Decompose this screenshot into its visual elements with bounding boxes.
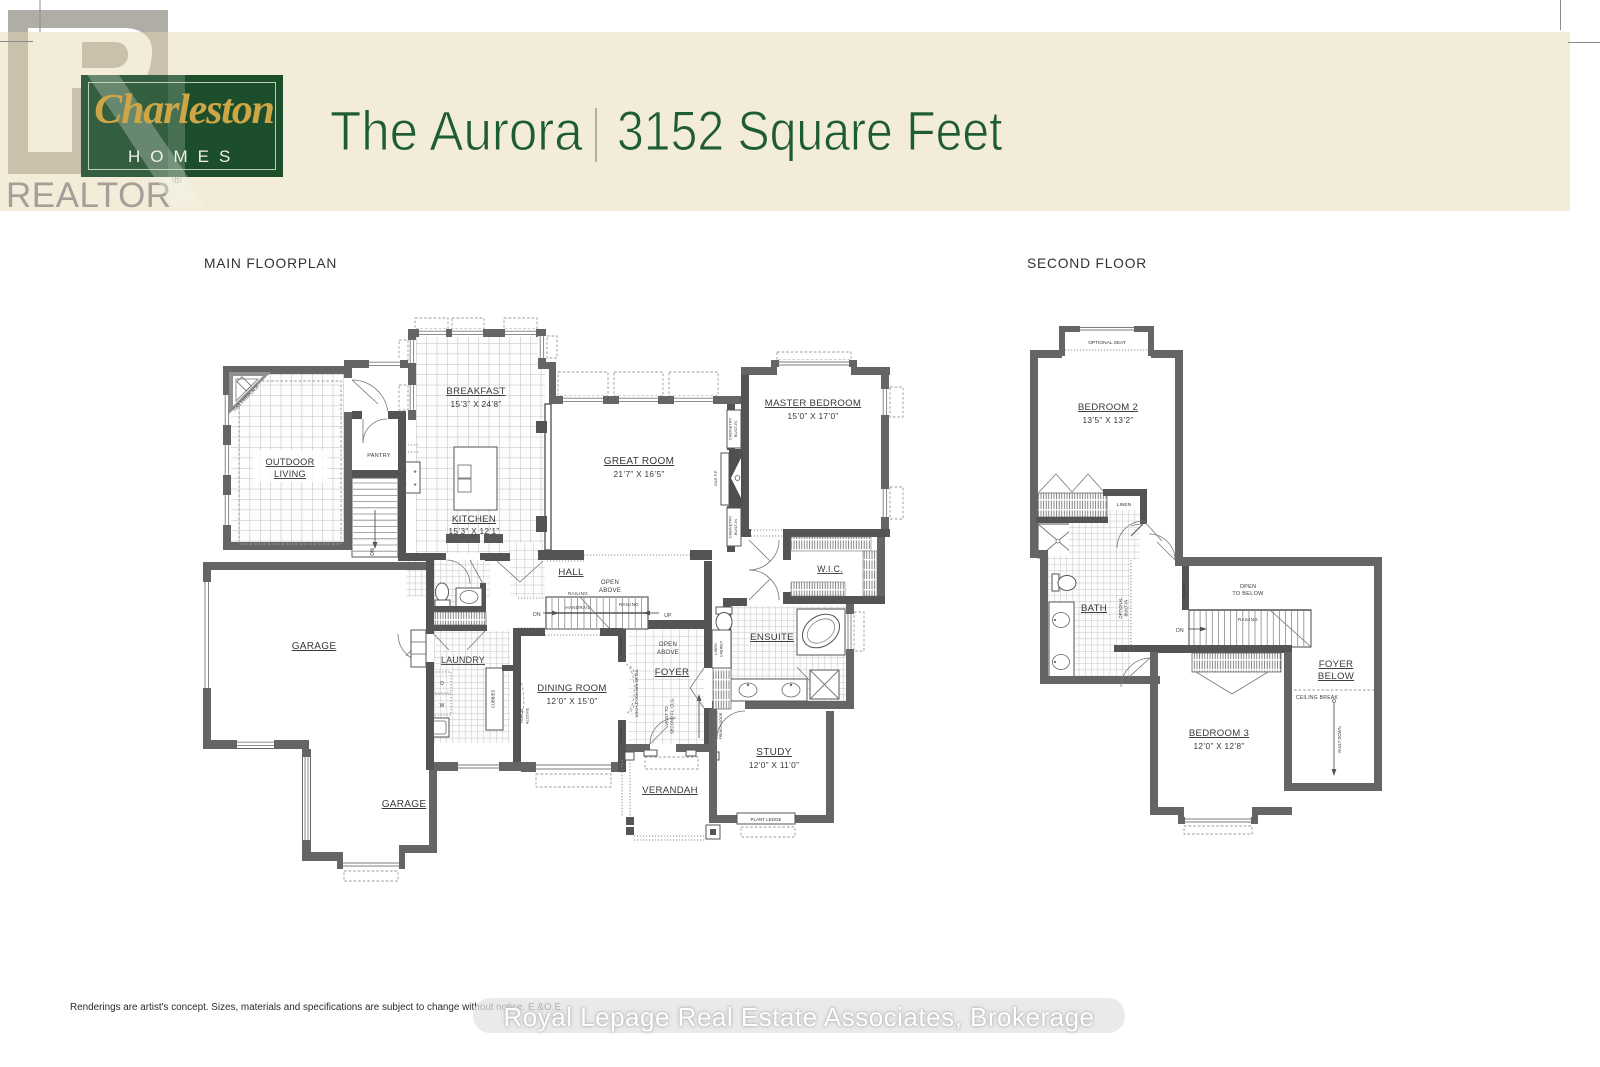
svg-text:ALCOVE: ALCOVE	[525, 708, 530, 725]
svg-text:15’0” X 17’0”: 15’0” X 17’0”	[788, 411, 839, 421]
svg-text:15’3” X 24’8”: 15’3” X 24’8”	[451, 399, 502, 409]
svg-text:LINEN: LINEN	[1117, 502, 1132, 508]
svg-text:RAILING: RAILING	[1238, 617, 1258, 622]
svg-text:LIVING: LIVING	[274, 469, 306, 479]
svg-text:VAULT TO: VAULT TO	[664, 705, 669, 725]
svg-text:PLANT LEDGE: PLANT LEDGE	[751, 817, 782, 822]
svg-text:GARAGE: GARAGE	[382, 799, 427, 810]
svg-text:OPTIONAL SEAT: OPTIONAL SEAT	[1088, 340, 1126, 346]
svg-text:BUILT-IN: BUILT-IN	[733, 421, 738, 437]
svg-text:KITCHEN: KITCHEN	[452, 514, 496, 525]
svg-text:BUILT-IN: BUILT-IN	[1124, 600, 1129, 617]
svg-text:CABINETRY: CABINETRY	[728, 515, 733, 538]
svg-text:BEDROOM 2: BEDROOM 2	[1078, 402, 1138, 413]
svg-text:LAUNDRY: LAUNDRY	[441, 655, 485, 665]
svg-text:GARAGE: GARAGE	[292, 641, 337, 652]
svg-text:RAILING: RAILING	[1181, 582, 1186, 598]
svg-text:12’0” X 15’0”: 12’0” X 15’0”	[547, 696, 598, 706]
svg-text:CUBBIES: CUBBIES	[491, 690, 496, 709]
svg-text:D: D	[440, 681, 444, 687]
svg-text:HANDRAIL: HANDRAIL	[565, 605, 590, 610]
svg-text:12’0” X 11’0”: 12’0” X 11’0”	[749, 760, 799, 770]
svg-text:OUTDOOR: OUTDOOR	[265, 457, 314, 467]
svg-text:GAS F.P.: GAS F.P.	[713, 470, 718, 486]
svg-text:BUILT-IN: BUILT-IN	[733, 519, 738, 535]
svg-text:PANTRY: PANTRY	[367, 453, 391, 459]
svg-text:DN: DN	[1176, 628, 1184, 634]
svg-text:OPEN: OPEN	[659, 642, 677, 648]
svg-text:HALL: HALL	[558, 567, 584, 578]
svg-text:RAILING: RAILING	[619, 602, 639, 607]
svg-text:DN: DN	[370, 548, 376, 556]
svg-text:OPEN: OPEN	[1240, 584, 1257, 590]
svg-text:VAULT DOWN: VAULT DOWN	[1337, 726, 1342, 753]
svg-text:OPEN: OPEN	[601, 580, 619, 586]
svg-text:OPTIONAL: OPTIONAL	[1118, 597, 1123, 619]
svg-text:DN: DN	[533, 612, 541, 618]
svg-text:VERANDAH: VERANDAH	[642, 785, 698, 796]
svg-text:MASTER BEDROOM: MASTER BEDROOM	[765, 398, 861, 409]
svg-text:TO BELOW: TO BELOW	[1232, 591, 1264, 597]
svg-text:13’5” X 13’2”: 13’5” X 13’2”	[1083, 415, 1134, 425]
svg-text:W: W	[440, 703, 445, 709]
svg-text:STUDY: STUDY	[756, 747, 791, 758]
svg-text:12’0” X 12’8”: 12’0” X 12’8”	[1194, 741, 1245, 751]
svg-text:ABOVE: ABOVE	[657, 650, 679, 656]
svg-text:*: *	[413, 482, 416, 491]
svg-text:BREAKFAST: BREAKFAST	[446, 386, 505, 397]
svg-text:RAILING: RAILING	[568, 591, 588, 596]
svg-text:W.I.C.: W.I.C.	[817, 564, 843, 574]
svg-text:GREAT ROOM: GREAT ROOM	[604, 456, 674, 467]
svg-text:BATH: BATH	[1081, 603, 1107, 614]
svg-text:SECOND FL. CLG.: SECOND FL. CLG.	[670, 698, 675, 734]
svg-text:CABINET: CABINET	[720, 640, 724, 657]
svg-text:BEDROOM 3: BEDROOM 3	[1189, 728, 1249, 739]
svg-text:FOYER: FOYER	[655, 667, 690, 678]
svg-text:FOYER: FOYER	[1319, 659, 1354, 670]
svg-text:LINEN: LINEN	[714, 643, 718, 654]
svg-text:ARCH & COLUMN DETAIL: ARCH & COLUMN DETAIL	[634, 668, 639, 717]
svg-text:CABINETRY: CABINETRY	[728, 417, 733, 440]
svg-text:ENSUITE: ENSUITE	[750, 632, 794, 643]
svg-text:DINING ROOM: DINING ROOM	[537, 683, 606, 694]
svg-text:21’7” X 16’5”: 21’7” X 16’5”	[614, 469, 665, 479]
svg-text:UP: UP	[664, 613, 672, 619]
svg-text:FRENCH DOOR: FRENCH DOOR	[719, 712, 723, 739]
svg-text:CEILING BREAK: CEILING BREAK	[1296, 695, 1339, 701]
svg-text:ABOVE: ABOVE	[599, 588, 621, 594]
svg-text:LOW WALL: LOW WALL	[618, 634, 623, 656]
svg-text:BELOW: BELOW	[1318, 671, 1355, 682]
svg-text:*: *	[413, 469, 416, 478]
